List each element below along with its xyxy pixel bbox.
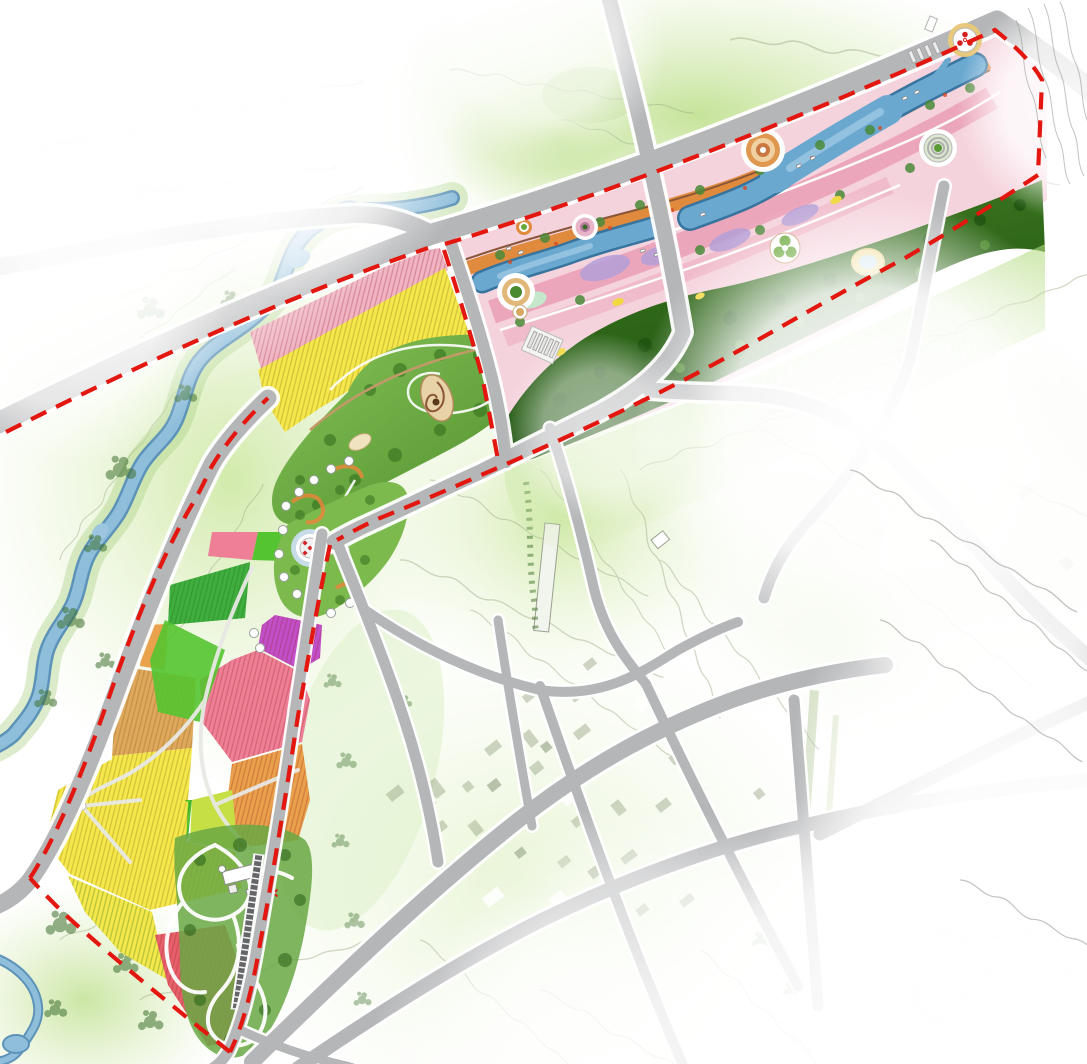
masterplan-map — [0, 0, 1087, 1064]
amphitheatre-circle — [919, 129, 957, 167]
west-ring-garden — [572, 214, 598, 240]
